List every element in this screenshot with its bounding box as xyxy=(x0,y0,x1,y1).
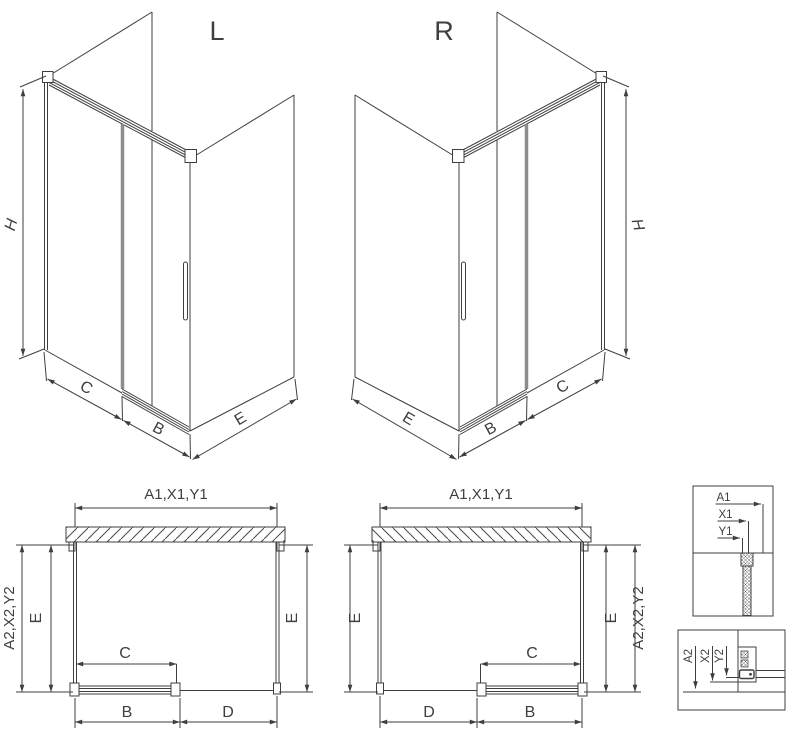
plan-left-dim-a1: A1,X1,Y1 xyxy=(144,486,207,503)
iso-left-label: L xyxy=(209,16,224,46)
iso-view-right xyxy=(352,12,631,460)
detail-top-dim-x1: X1 xyxy=(719,509,733,521)
plan-right-dim-e-right: E xyxy=(603,613,620,624)
iso-right-dim-c: C xyxy=(554,377,572,397)
plan-left-dim-b: B xyxy=(122,704,133,721)
plan-left-dim-d: D xyxy=(222,704,234,721)
detail-bottom-dim-x2: X2 xyxy=(700,649,712,663)
technical-drawing-sheet: L H C B E R H E B C A1,X1,Y1 A2,X2,Y2 E … xyxy=(0,0,800,736)
detail-bottom-dim-y2: Y2 xyxy=(714,649,726,663)
plan-left-dim-e-right: E xyxy=(284,613,301,624)
iso-view-left xyxy=(19,12,298,460)
iso-right-dim-h: H xyxy=(628,217,648,233)
shower-enclosure-drawing: L H C B E R H E B C A1,X1,Y1 A2,X2,Y2 E … xyxy=(0,0,800,736)
plan-right-dim-e-left: E xyxy=(347,613,364,624)
iso-left-dim-h: H xyxy=(2,217,22,233)
plan-right-dim-a2: A2,X2,Y2 xyxy=(630,586,647,649)
plan-right-dim-a1: A1,X1,Y1 xyxy=(449,486,512,503)
detail-top-frame xyxy=(693,486,773,616)
wall-profile-section xyxy=(741,553,753,566)
detail-bottom-profile xyxy=(678,630,785,710)
plan-left-dim-c: C xyxy=(119,645,131,662)
plan-view-left xyxy=(16,503,313,728)
detail-bottom-dim-a2: A2 xyxy=(683,649,695,663)
detail-top-dim-y1: Y1 xyxy=(719,526,733,538)
iso-right-label: R xyxy=(434,16,454,46)
detail-top-profile xyxy=(693,486,773,616)
iso-left-dim-e: E xyxy=(232,409,250,429)
plan-right-dim-b: B xyxy=(525,704,536,721)
plan-right-dim-d: D xyxy=(423,704,435,721)
plan-view-right xyxy=(344,503,641,728)
iso-right-dim-e: E xyxy=(399,409,417,429)
plan-left-dim-e-left: E xyxy=(28,613,45,624)
plan-left-dim-a2: A2,X2,Y2 xyxy=(1,586,18,649)
iso-left-dim-c: C xyxy=(77,378,95,398)
glass-section xyxy=(743,566,751,616)
detail-top-dim-a1: A1 xyxy=(717,492,731,504)
plan-right-dim-c: C xyxy=(526,645,538,662)
